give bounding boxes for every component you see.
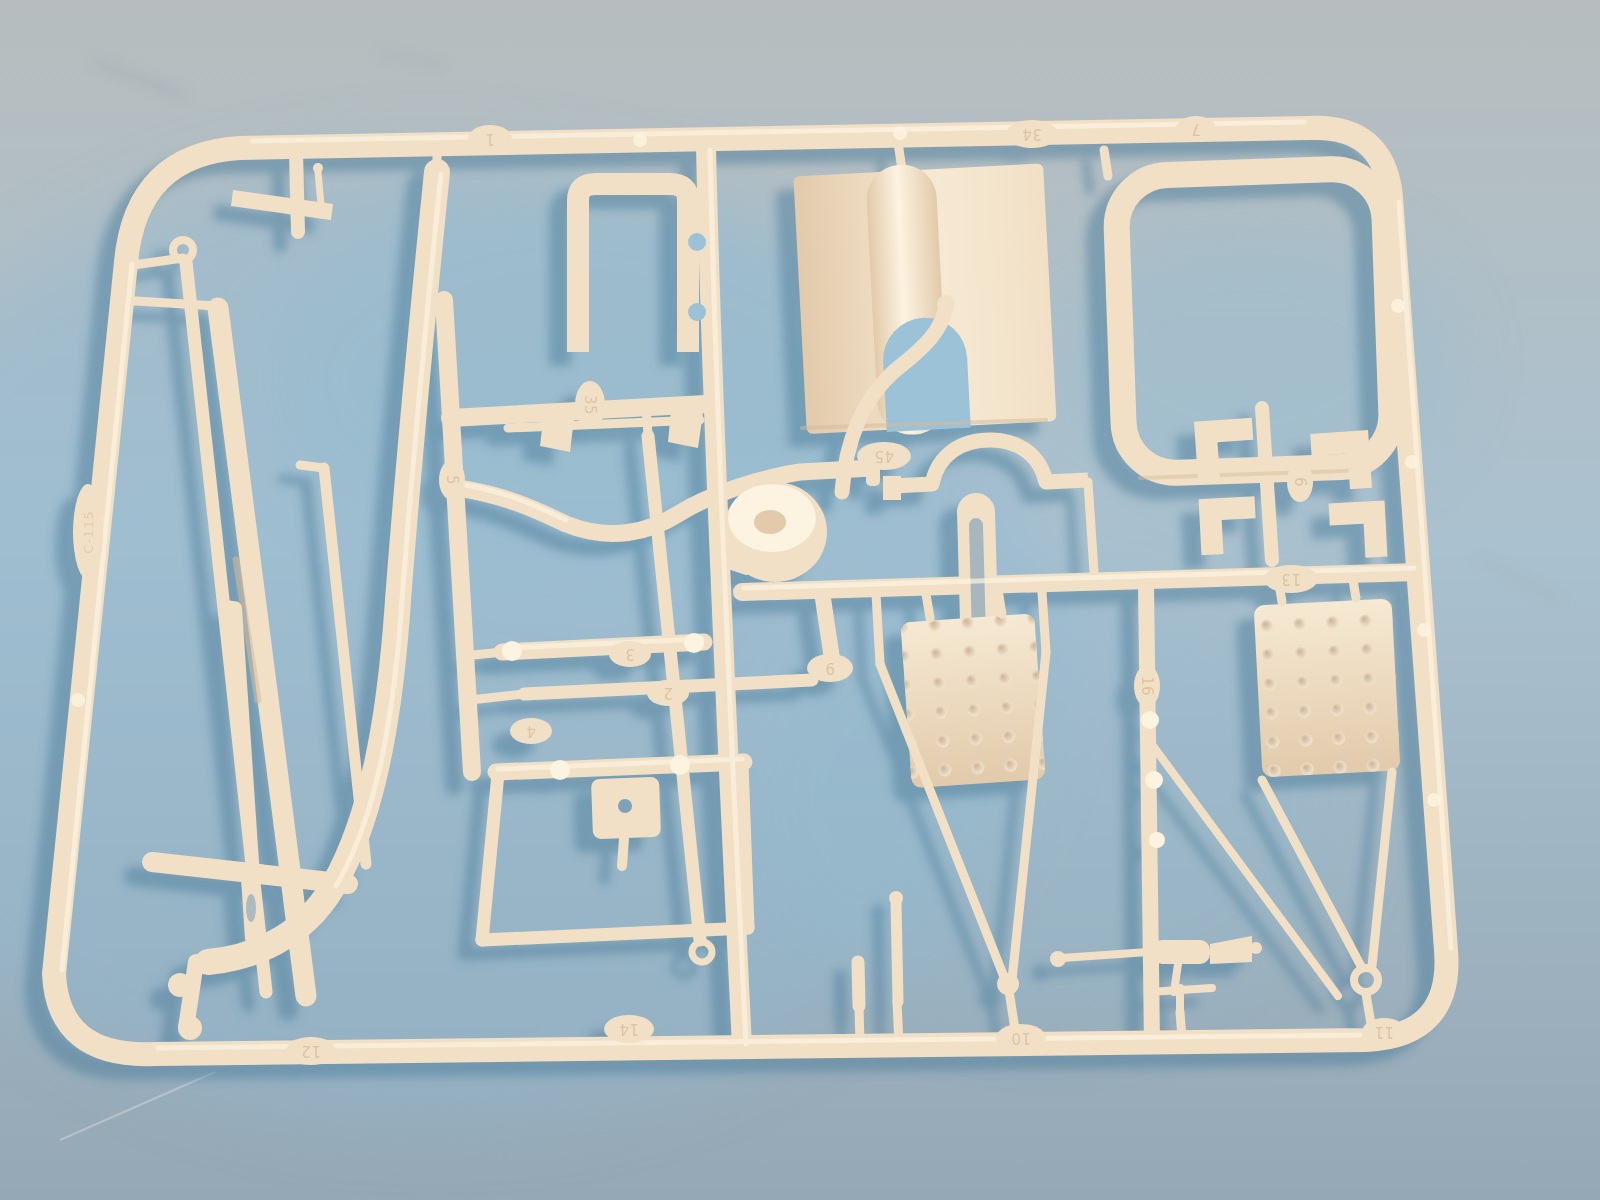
photo-of-model-sprue: 1 34 7 35 5 45 6 13 9 16 3 2 4 12 14 10 … [0, 0, 1600, 1200]
